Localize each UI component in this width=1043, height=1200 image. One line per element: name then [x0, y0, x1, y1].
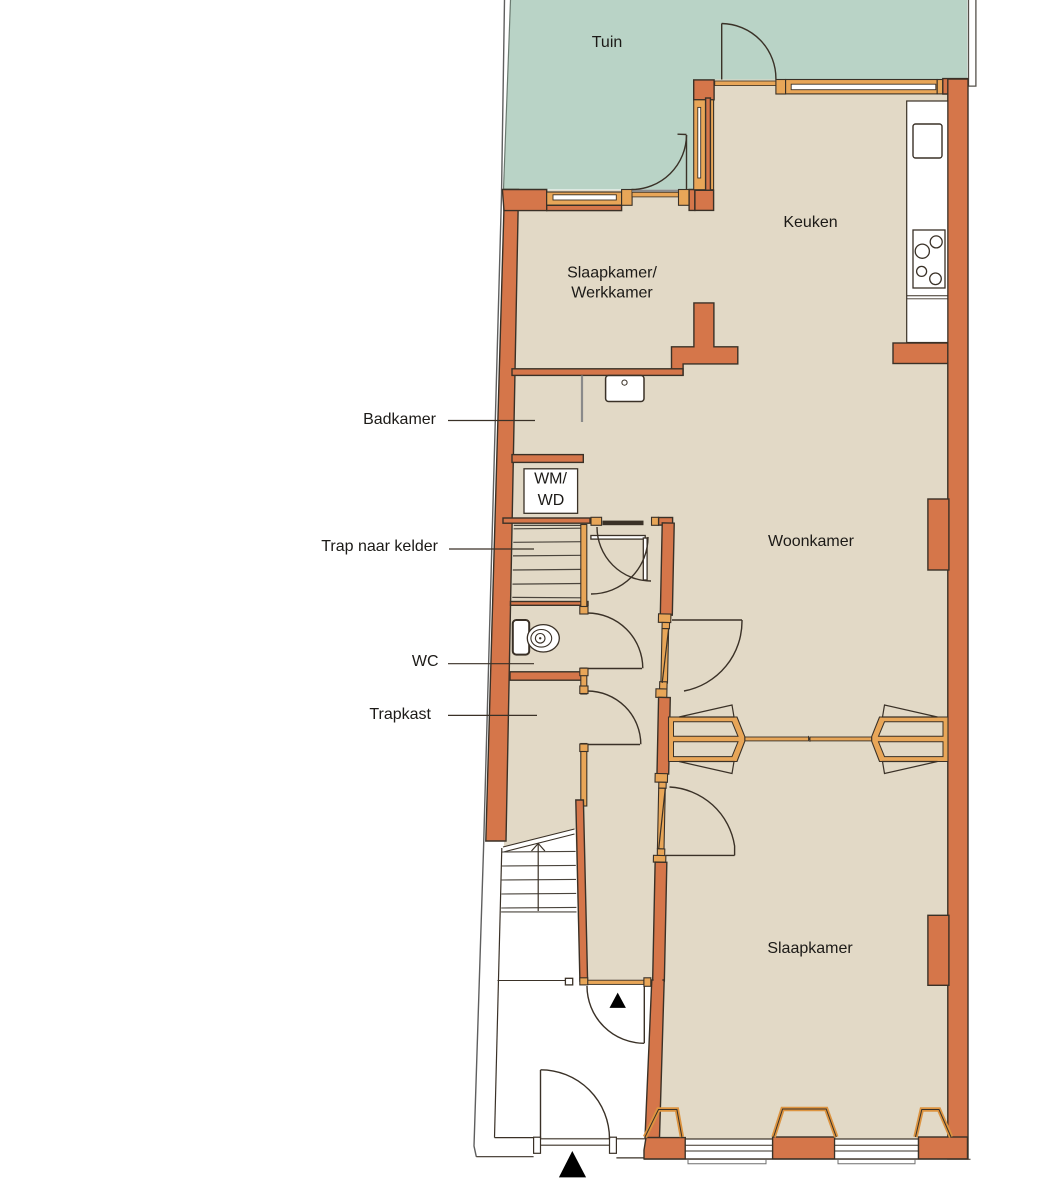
svg-text:Werkkamer: Werkkamer	[571, 285, 653, 302]
svg-text:Trap naar kelder: Trap naar kelder	[321, 538, 438, 555]
svg-text:Trapkast: Trapkast	[369, 706, 431, 723]
svg-text:Slaapkamer: Slaapkamer	[767, 940, 853, 957]
svg-text:WM/: WM/	[534, 471, 567, 488]
svg-text:Woonkamer: Woonkamer	[768, 533, 855, 550]
svg-text:WD: WD	[538, 492, 565, 509]
svg-text:Slaapkamer/: Slaapkamer/	[567, 265, 657, 282]
svg-text:Badkamer: Badkamer	[363, 411, 437, 428]
svg-text:Keuken: Keuken	[783, 214, 837, 231]
svg-text:Tuin: Tuin	[592, 34, 623, 51]
svg-text:WC: WC	[412, 653, 439, 670]
